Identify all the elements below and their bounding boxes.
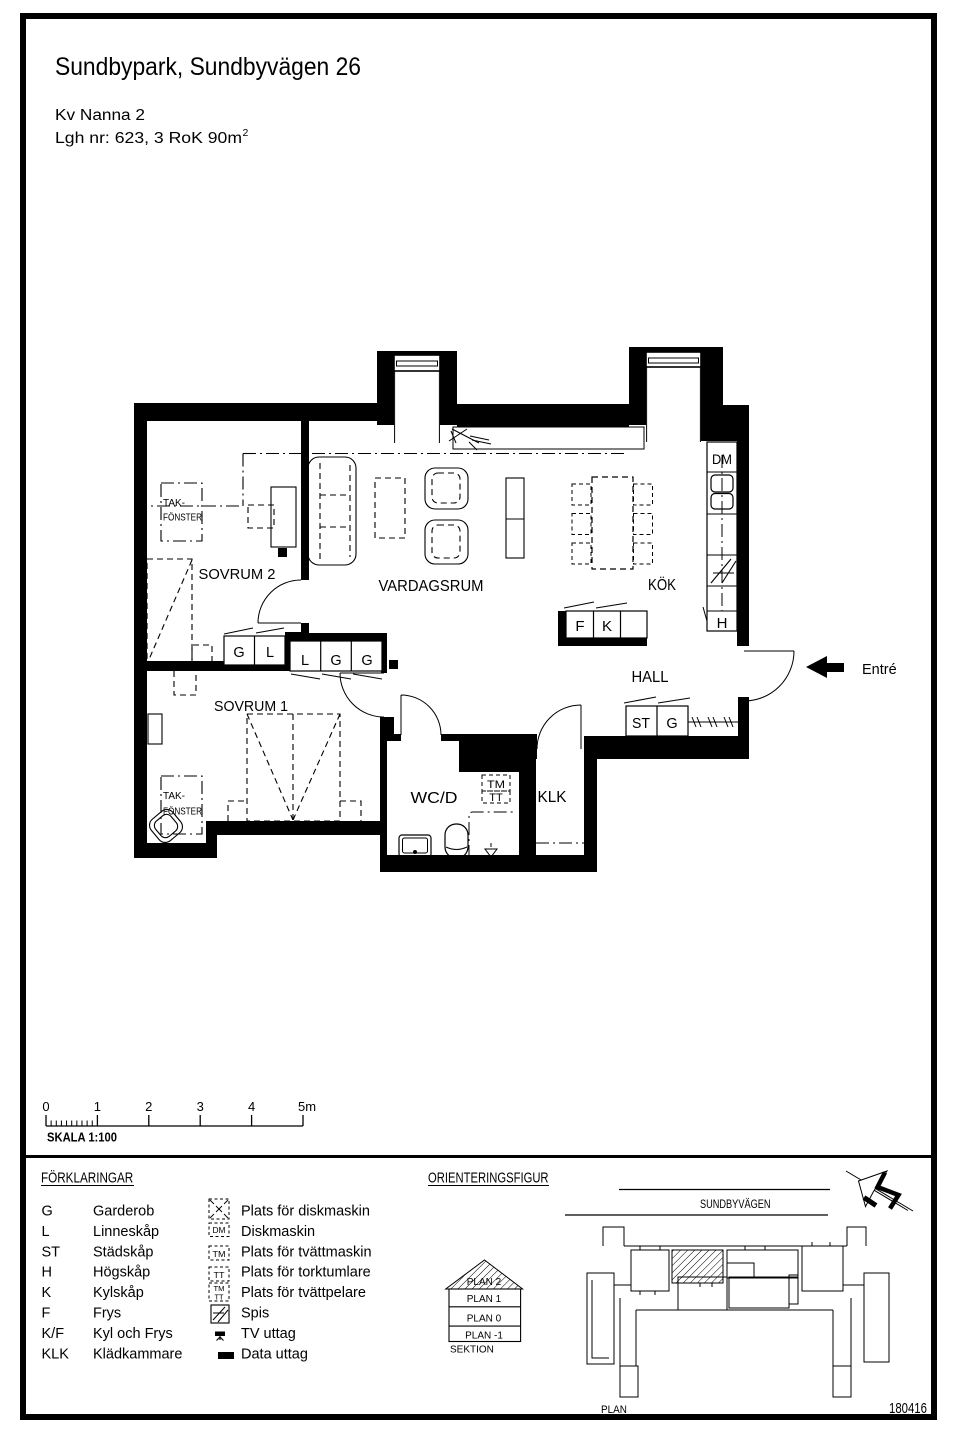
svg-text:Klädkammare: Klädkammare [93, 1346, 182, 1362]
svg-text:Plats för tvättmaskin: Plats för tvättmaskin [241, 1244, 372, 1260]
svg-text:L: L [301, 653, 309, 669]
svg-text:TT: TT [215, 1293, 224, 1302]
svg-text:Lgh nr: 623, 3 RoK 90m: Lgh nr: 623, 3 RoK 90m [55, 130, 242, 147]
svg-text:TM: TM [213, 1249, 226, 1259]
svg-text:FÖRKLARINGAR: FÖRKLARINGAR [41, 1169, 133, 1186]
svg-text:Linneskåp: Linneskåp [93, 1224, 159, 1240]
svg-text:ST: ST [632, 716, 650, 732]
svg-text:KÖK: KÖK [648, 576, 677, 594]
svg-text:PLAN 2: PLAN 2 [467, 1277, 502, 1288]
svg-text:HALL: HALL [632, 669, 669, 686]
svg-text:G: G [233, 645, 244, 661]
svg-text:Plats för tvättpelare: Plats för tvättpelare [241, 1285, 366, 1301]
svg-text:PLAN 1: PLAN 1 [467, 1294, 502, 1305]
svg-text:TT: TT [489, 792, 503, 804]
svg-text:TT: TT [214, 1270, 225, 1280]
svg-text:K: K [602, 618, 612, 635]
svg-text:ORIENTERINGSFIGUR: ORIENTERINGSFIGUR [428, 1169, 549, 1186]
svg-text:0: 0 [42, 1099, 49, 1114]
svg-text:180416: 180416 [889, 1400, 927, 1417]
svg-text:Diskmaskin: Diskmaskin [241, 1224, 315, 1240]
svg-text:2: 2 [243, 127, 249, 139]
svg-text:3: 3 [197, 1099, 204, 1114]
svg-text:SUNDBYVÄGEN: SUNDBYVÄGEN [700, 1198, 771, 1211]
svg-text:PLAN: PLAN [601, 1405, 627, 1417]
svg-text:Kyl och Frys: Kyl och Frys [93, 1326, 173, 1342]
svg-text:G: G [666, 716, 677, 732]
svg-text:TM: TM [487, 779, 505, 791]
svg-text:Garderob: Garderob [93, 1204, 154, 1220]
svg-text:TAK-: TAK- [163, 791, 185, 802]
svg-text:G: G [330, 653, 341, 669]
svg-text:DM: DM [213, 1225, 226, 1235]
svg-text:Kylskåp: Kylskåp [93, 1285, 144, 1301]
svg-text:ST: ST [42, 1244, 61, 1260]
svg-text:WC/D: WC/D [411, 790, 458, 807]
svg-text:G: G [42, 1204, 53, 1220]
svg-text:1: 1 [94, 1099, 101, 1114]
svg-text:H: H [42, 1265, 52, 1281]
svg-text:5m: 5m [298, 1099, 316, 1114]
svg-text:SOVRUM 2: SOVRUM 2 [199, 566, 276, 583]
svg-text:2: 2 [145, 1099, 152, 1114]
svg-text:K/F: K/F [42, 1326, 65, 1342]
svg-text:PLAN 0: PLAN 0 [467, 1314, 502, 1325]
svg-text:KLK: KLK [42, 1346, 70, 1362]
svg-text:F: F [575, 618, 584, 635]
svg-text:TAK-: TAK- [163, 498, 185, 509]
svg-text:VARDAGSRUM: VARDAGSRUM [379, 578, 484, 595]
svg-text:L: L [266, 645, 274, 661]
svg-text:Sundbypark, Sundbyvägen 26: Sundbypark, Sundbyvägen 26 [55, 53, 361, 81]
svg-text:Spis: Spis [241, 1306, 269, 1322]
svg-text:H: H [717, 615, 728, 632]
svg-text:TV uttag: TV uttag [241, 1326, 296, 1342]
svg-text:Plats för torktumlare: Plats för torktumlare [241, 1265, 371, 1281]
svg-text:Plats för diskmaskin: Plats för diskmaskin [241, 1204, 370, 1220]
svg-text:Kv Nanna 2: Kv Nanna 2 [55, 107, 145, 124]
svg-text:Frys: Frys [93, 1306, 121, 1322]
svg-text:DM: DM [712, 451, 732, 467]
svg-text:4: 4 [248, 1099, 255, 1114]
svg-text:Entré: Entré [862, 662, 897, 678]
svg-text:SKALA 1:100: SKALA 1:100 [47, 1130, 117, 1145]
svg-text:L: L [42, 1224, 50, 1240]
svg-text:PLAN -1: PLAN -1 [465, 1331, 503, 1342]
svg-text:Städskåp: Städskåp [93, 1244, 153, 1260]
svg-text:SEKTION: SEKTION [450, 1345, 494, 1356]
svg-text:G: G [361, 653, 372, 669]
svg-text:F: F [42, 1306, 51, 1322]
svg-text:KLK: KLK [538, 789, 568, 806]
svg-text:Högskåp: Högskåp [93, 1265, 150, 1281]
svg-text:Data uttag: Data uttag [241, 1346, 308, 1362]
svg-text:SOVRUM 1: SOVRUM 1 [214, 698, 288, 715]
svg-text:FÖNSTER: FÖNSTER [163, 512, 202, 524]
svg-text:FÖNSTER: FÖNSTER [163, 806, 202, 818]
svg-text:K: K [42, 1285, 52, 1301]
